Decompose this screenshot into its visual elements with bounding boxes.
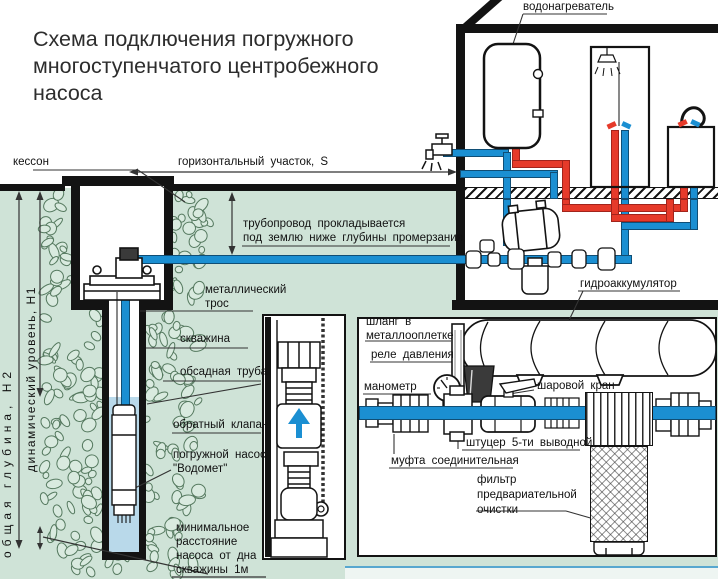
label-check-valve: обратный клапан — [173, 419, 268, 433]
inset2-filter-bottom — [594, 542, 644, 555]
label-pipeline-note: трубопровод прокладывается под землю ниж… — [243, 218, 463, 245]
wellhead-assembly — [84, 248, 160, 300]
label-hose: шланг в металлооплетке — [366, 316, 454, 343]
check-valve-arrow — [296, 424, 302, 438]
label-well: скважина — [180, 333, 230, 347]
label-pressure-relay: реле давления — [371, 349, 454, 363]
diagram-title: Схема подключения погружного многоступен… — [33, 26, 473, 107]
inset2-tank — [462, 320, 716, 385]
outdoor-faucet-icon — [422, 134, 452, 171]
label-pump: погружной насос "Водомет" — [173, 449, 266, 476]
label-kesson: кессон — [13, 156, 49, 170]
label-min-distance: минимальное расстояние насоса от дна скв… — [176, 521, 256, 577]
label-metal-cable: металлический трос — [205, 284, 286, 311]
inset1-contents — [265, 317, 328, 557]
inset2-filter-bowl — [590, 446, 648, 542]
label-prefilter: фильтр предвариательной очистки — [477, 473, 577, 518]
label-dynamic-level: динамический уровень, Н1 — [24, 182, 38, 472]
dimension-h2 — [16, 191, 23, 549]
label-horizontal-section: горизонтальный участок, S — [178, 156, 328, 170]
label-casing: обсадная труба — [180, 366, 267, 380]
label-coupling: муфта соединительная — [391, 455, 519, 469]
label-fitting5: штуцер 5-ти выводной — [466, 437, 592, 451]
label-ball-valve: шаровой кран — [537, 380, 615, 394]
label-water-heater: водонагреватель — [523, 1, 614, 15]
inset2-filter-cap — [585, 392, 653, 446]
diagram-canvas: Схема подключения погружного многоступен… — [0, 0, 718, 579]
basement-hydroaccumulator — [500, 199, 561, 253]
inset2-pipe — [359, 406, 716, 420]
water-heater-tank — [484, 44, 543, 148]
label-manometer: манометр — [364, 381, 417, 395]
basement-filter — [522, 258, 548, 294]
label-total-depth: общая глубина, Н2 — [0, 222, 14, 558]
submersible-pump — [112, 292, 136, 523]
freeze-depth-arrow — [229, 192, 236, 255]
dimension-s — [129, 169, 457, 176]
label-hydroaccumulator: гидроаккумулятор — [580, 278, 677, 292]
shower-stall — [591, 47, 649, 187]
sink-cabinet — [668, 108, 714, 187]
